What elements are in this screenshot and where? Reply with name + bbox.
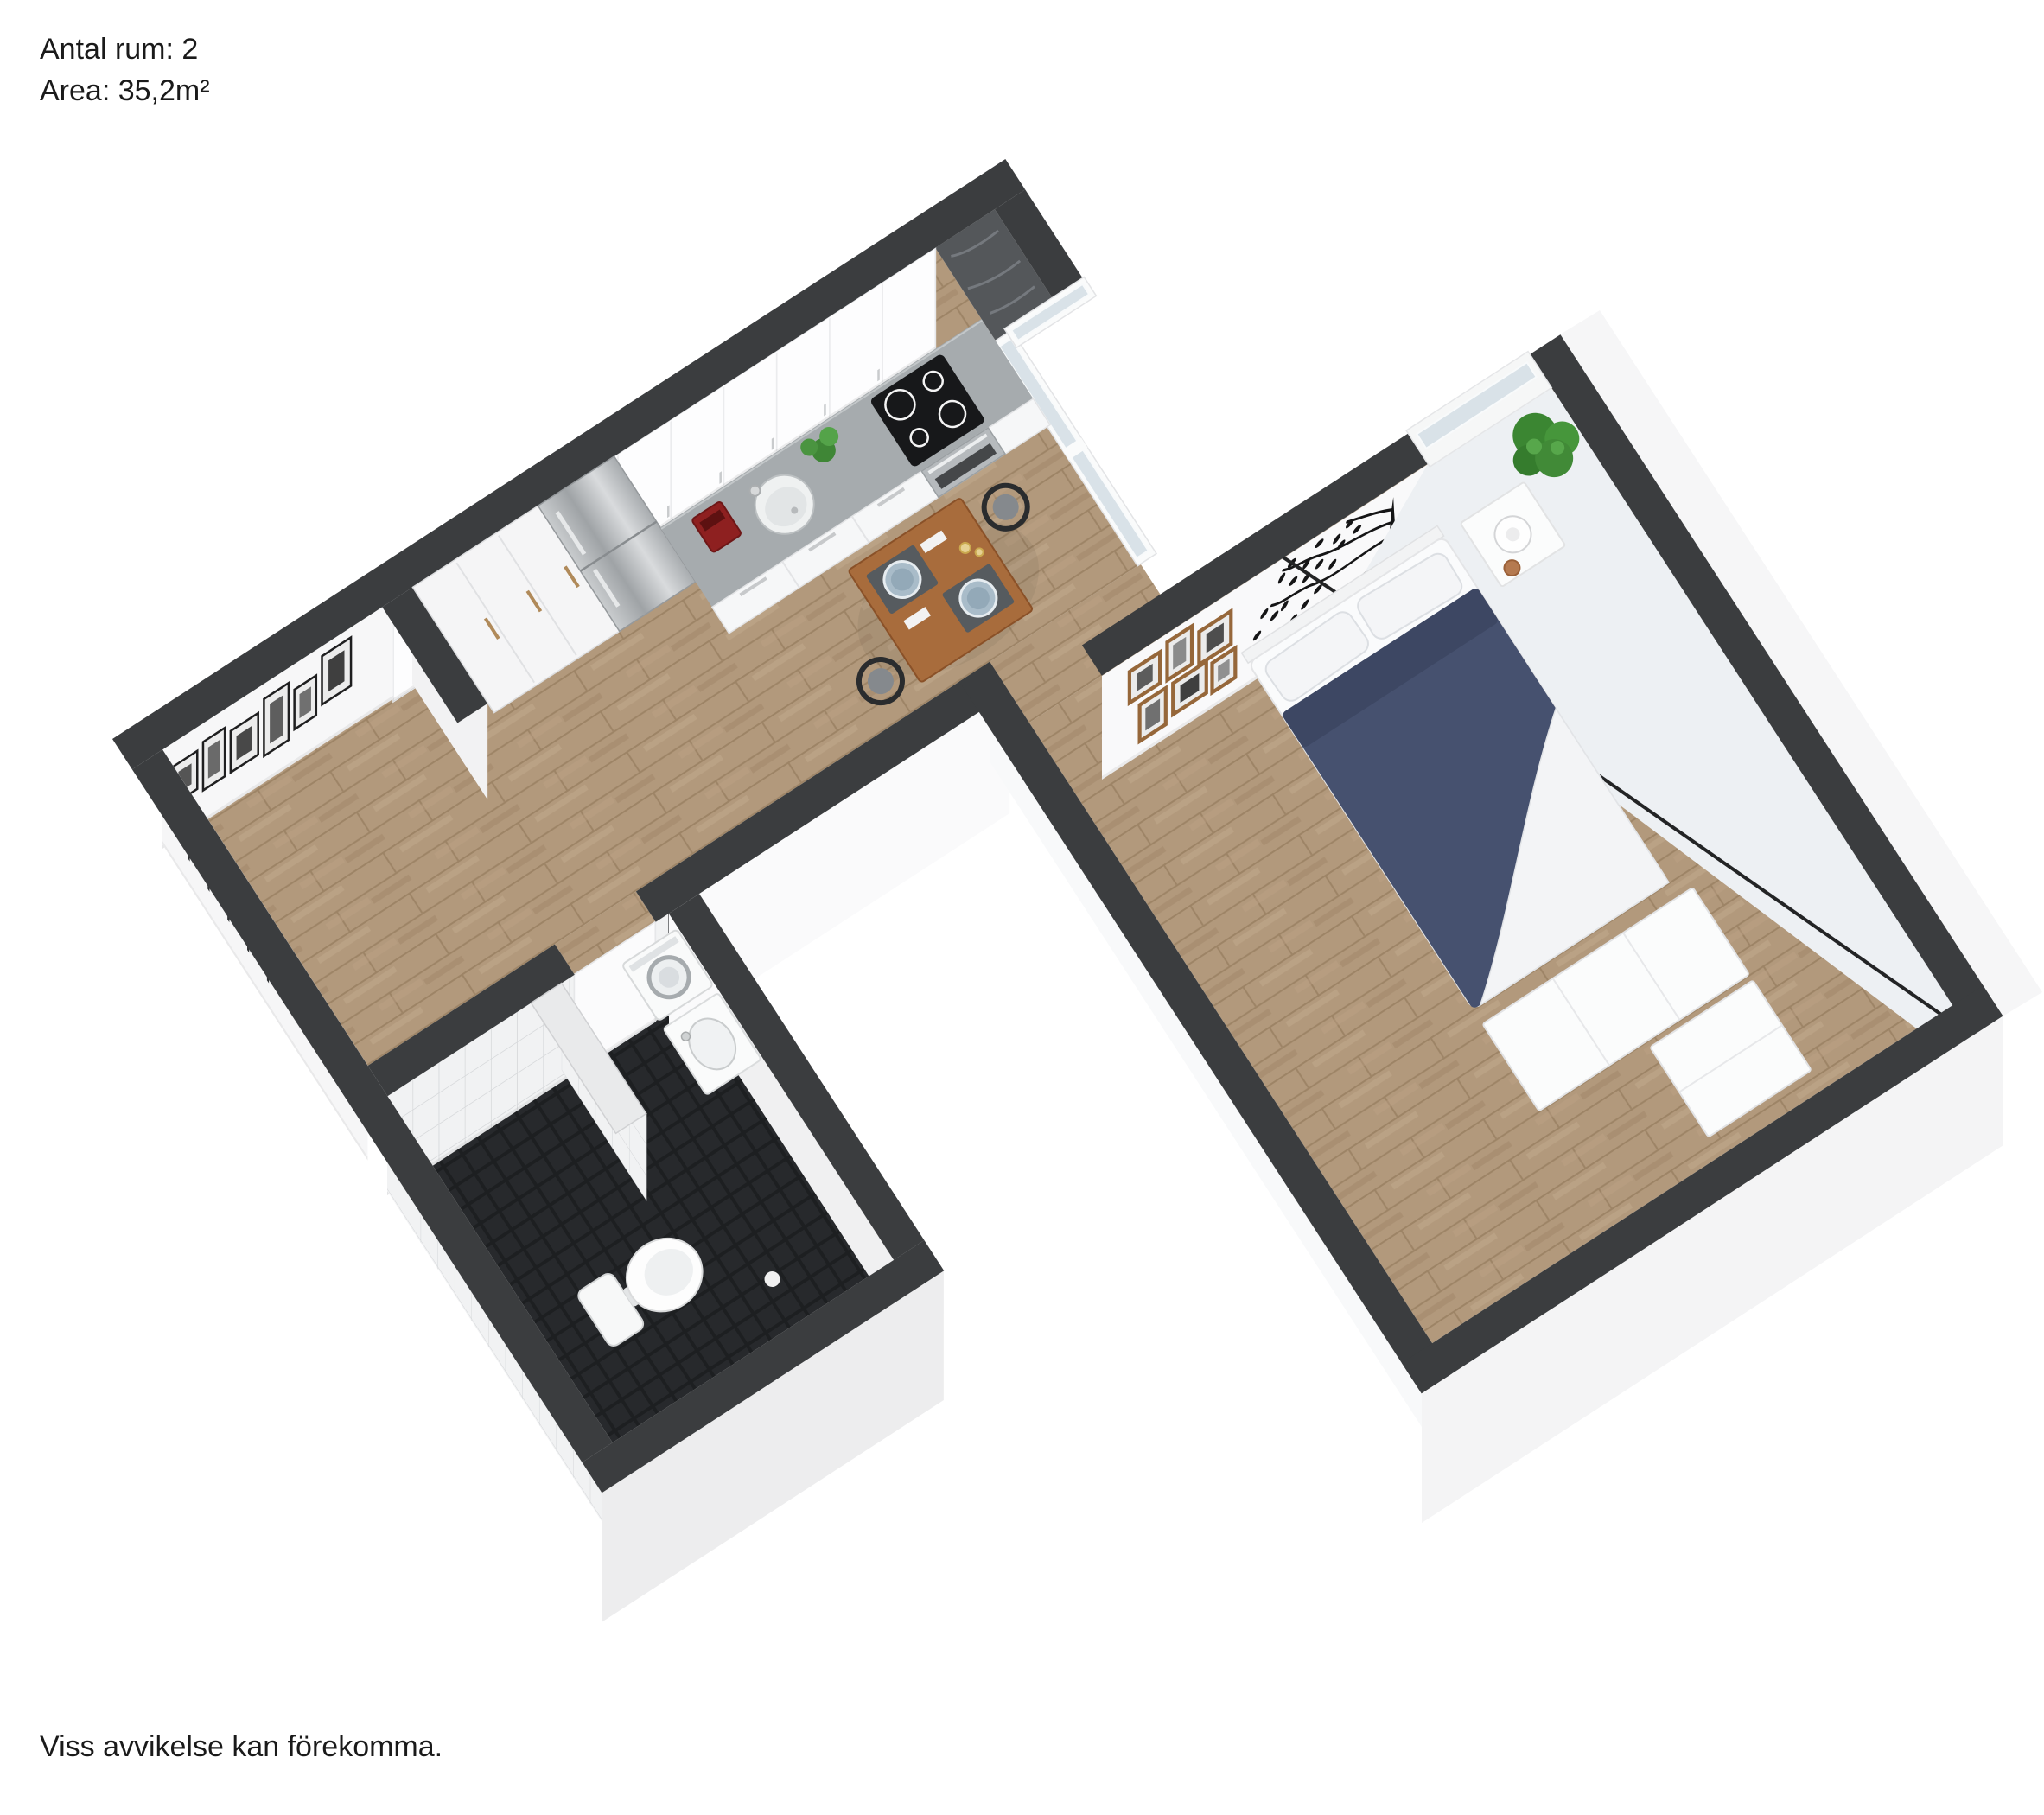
disclaimer-text: Viss avvikelse kan förekomma. [40,1730,443,1764]
floor-plan-render [0,0,2044,1815]
floorplan-page: Antal rum: 2 Area: 35,2m² [0,0,2044,1815]
